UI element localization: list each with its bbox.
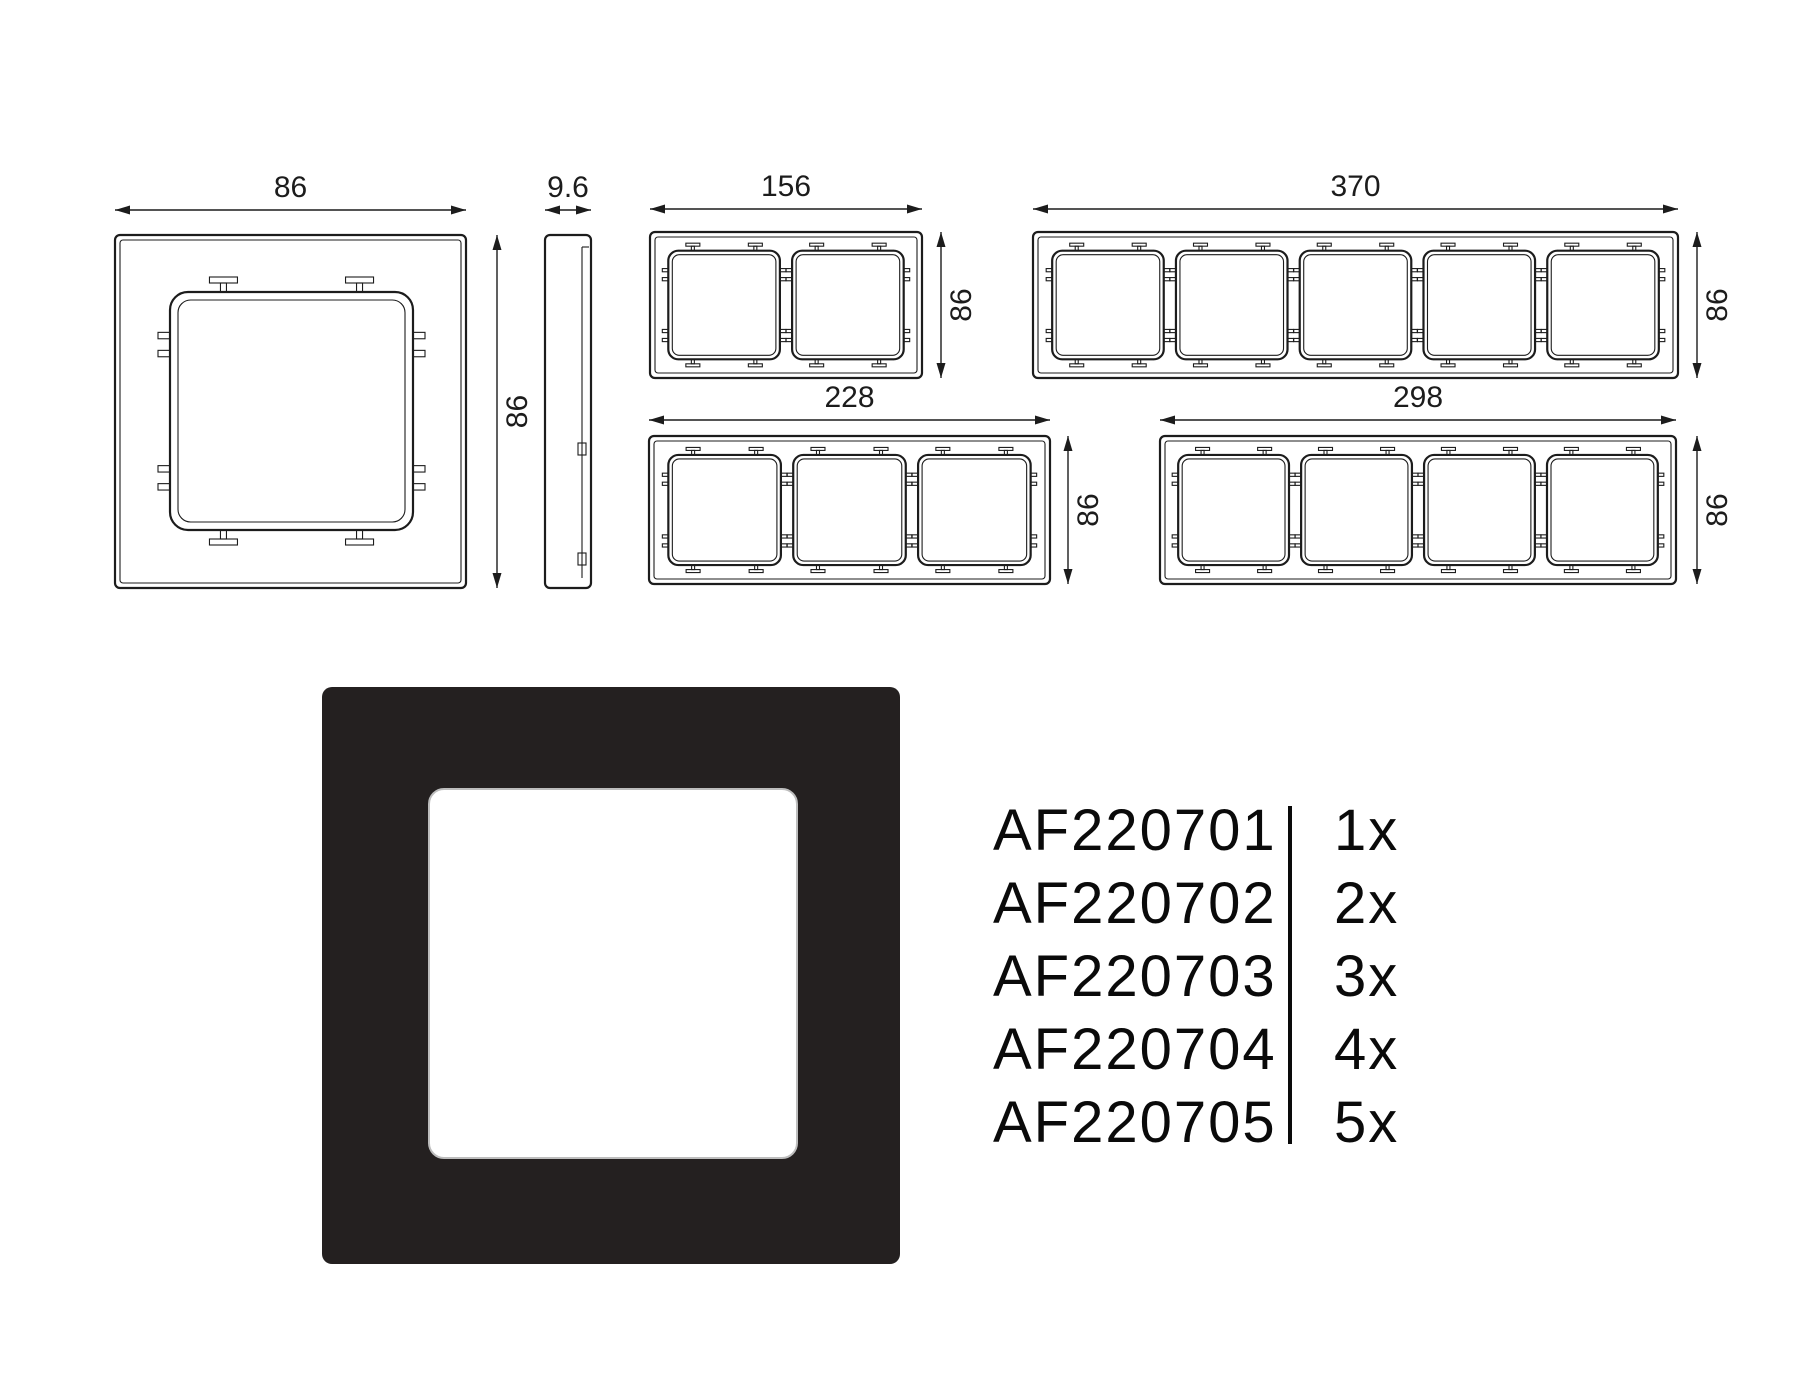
- table-row: AF220704 4x: [993, 1013, 1399, 1086]
- dimension-width-4gang: 298: [1160, 381, 1676, 425]
- gang-count: 5x: [1288, 1089, 1399, 1156]
- table-row: AF220703 3x: [993, 940, 1399, 1013]
- gang-count: 3x: [1288, 943, 1399, 1010]
- dimension-label: 9.6: [547, 171, 589, 204]
- dimension-height-3gang: 86: [1064, 436, 1106, 584]
- drawing-frame-2gang: [650, 232, 922, 378]
- spec-sheet: 86869.615686370862288629886 AF220701 1x …: [0, 0, 1800, 1400]
- dimension-width-2gang: 156: [650, 170, 922, 214]
- dimension-height-4gang: 86: [1693, 436, 1735, 584]
- table-row: AF220705 5x: [993, 1086, 1399, 1159]
- dimension-label: 86: [1701, 288, 1734, 321]
- gang-count: 1x: [1288, 797, 1399, 864]
- table-row: AF220702 2x: [993, 867, 1399, 940]
- dimension-label: 228: [824, 381, 874, 414]
- part-code: AF220704: [993, 1016, 1288, 1083]
- product-photo-frame-window: [428, 788, 798, 1159]
- part-code: AF220705: [993, 1089, 1288, 1156]
- part-code: AF220701: [993, 797, 1288, 864]
- dimension-depth-side: 9.6: [545, 171, 591, 215]
- dimension-height-1gang: 86: [493, 235, 535, 588]
- dimension-label: 86: [945, 288, 978, 321]
- drawing-frame-5gang: [1033, 232, 1678, 378]
- table-row: AF220701 1x: [993, 794, 1399, 867]
- drawing-frame-4gang: [1160, 436, 1676, 584]
- drawing-side-profile: [545, 235, 591, 588]
- dimension-label: 298: [1393, 381, 1443, 414]
- dimension-width-1gang: 86: [115, 171, 466, 215]
- gang-count: 2x: [1288, 870, 1399, 937]
- part-code: AF220703: [993, 943, 1288, 1010]
- dimension-width-3gang: 228: [649, 381, 1050, 425]
- dimension-label: 86: [501, 395, 534, 428]
- drawing-frame-1gang: [115, 235, 466, 588]
- dimension-label: 370: [1330, 170, 1380, 203]
- drawing-frame-3gang: [649, 436, 1050, 584]
- dimension-label: 86: [274, 171, 307, 204]
- gang-count: 4x: [1288, 1016, 1399, 1083]
- part-number-table: AF220701 1x AF220702 2x AF220703 3x AF22…: [993, 794, 1399, 1159]
- dimension-height-2gang: 86: [937, 232, 979, 378]
- dimension-label: 156: [761, 170, 811, 203]
- product-photo-black-frame: [322, 687, 900, 1264]
- dimension-label: 86: [1072, 493, 1105, 526]
- dimension-height-5gang: 86: [1693, 232, 1735, 378]
- dimension-label: 86: [1701, 493, 1734, 526]
- dimension-width-5gang: 370: [1033, 170, 1678, 214]
- technical-drawings: 86869.615686370862288629886: [0, 0, 1800, 650]
- part-code: AF220702: [993, 870, 1288, 937]
